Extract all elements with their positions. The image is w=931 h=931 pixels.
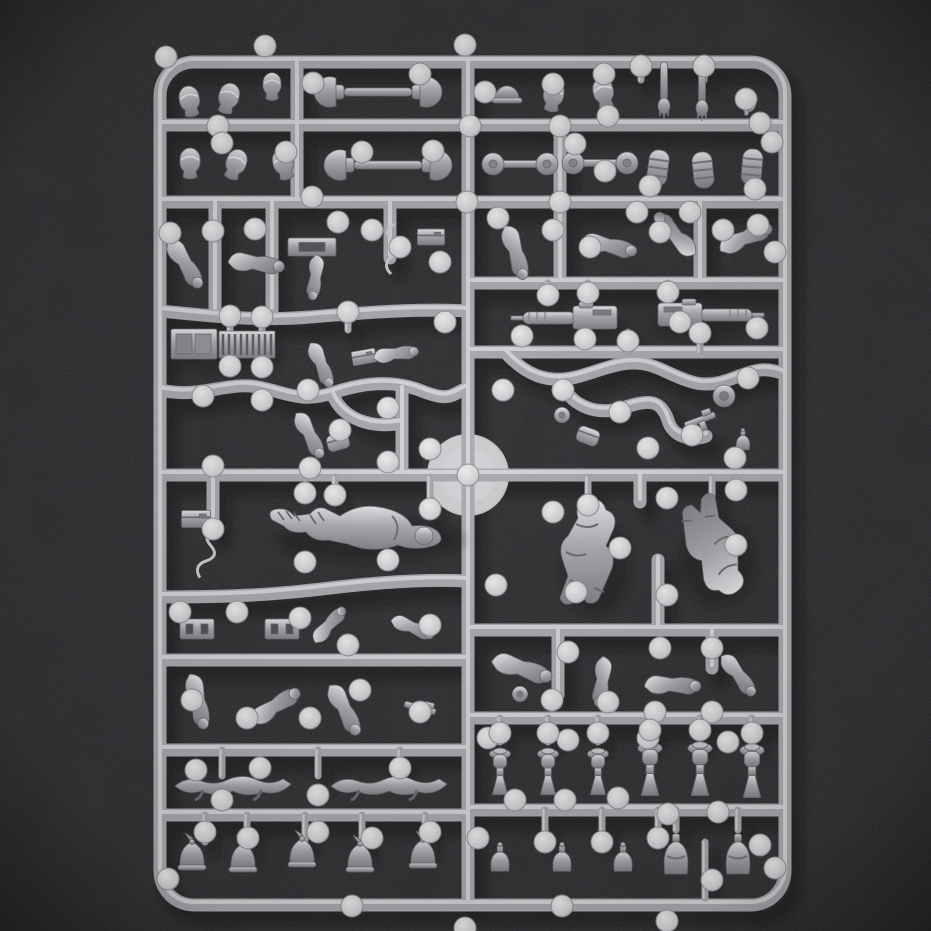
sprue-photo-canvas (0, 0, 931, 931)
vignette-overlay (0, 0, 931, 931)
sprue-photo: Overhead photograph of a silver-grey inj… (0, 0, 931, 931)
